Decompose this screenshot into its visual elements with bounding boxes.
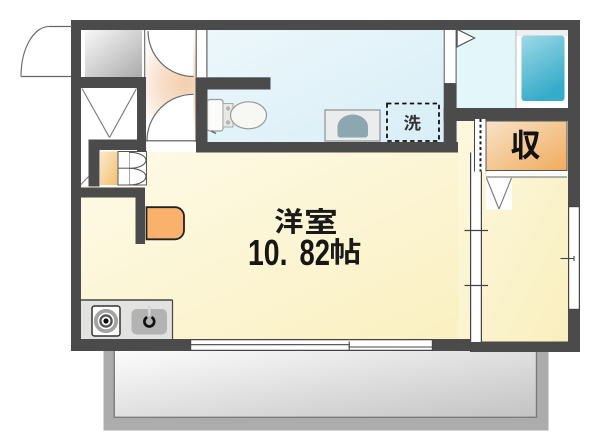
svg-text:82: 82 <box>300 232 331 273</box>
svg-text:10.: 10. <box>248 232 288 273</box>
